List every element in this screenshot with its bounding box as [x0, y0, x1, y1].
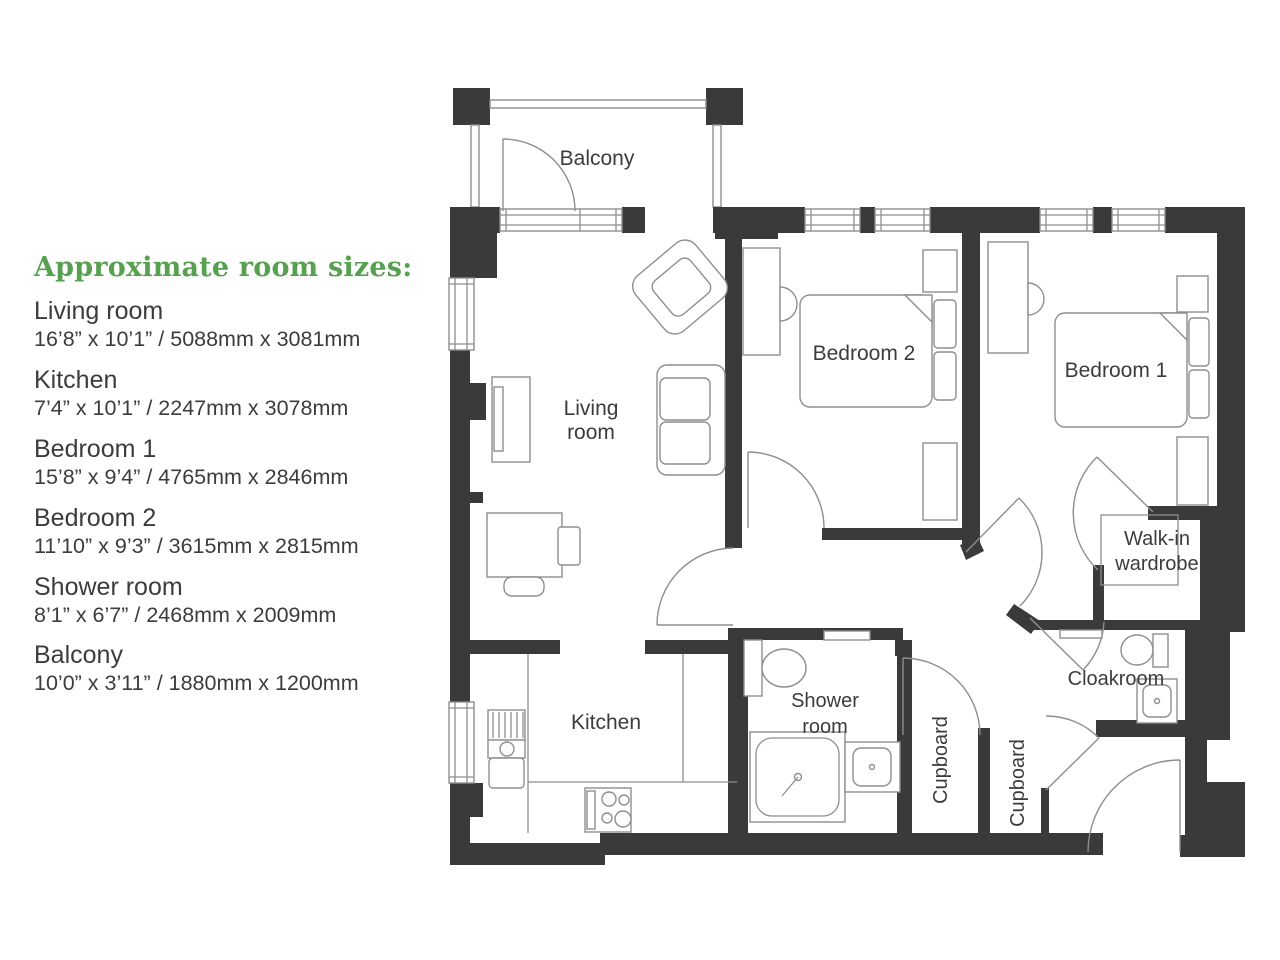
label-bedroom1: Bedroom 1	[1065, 359, 1168, 382]
cupboard2-door	[1046, 716, 1099, 790]
bedroom2-window-1	[805, 209, 860, 231]
tv-screen	[494, 387, 503, 451]
cloakroom-basin-drain	[1155, 699, 1160, 704]
hob-controls	[587, 791, 595, 829]
cloakroom-toilet-cistern	[1153, 634, 1168, 667]
shower-room-sliding-door	[824, 631, 870, 640]
bedroom1-window-1	[1040, 209, 1093, 231]
armchair	[627, 234, 733, 339]
bedroom1-window-2	[1112, 209, 1165, 231]
label-shower-line2: room	[802, 716, 848, 738]
hob-burner-3	[602, 813, 612, 823]
shower-toilet-cistern	[744, 640, 762, 696]
bedroom2-pillow-2	[934, 352, 956, 400]
kitchen-side-window	[449, 702, 474, 783]
desk-monitor	[558, 527, 580, 565]
label-bedroom2: Bedroom 2	[813, 342, 916, 365]
desk-chair	[504, 577, 544, 596]
bedroom2-drawers	[923, 443, 957, 520]
kitchen-faucet	[500, 742, 514, 756]
balcony-railing-top	[490, 100, 706, 108]
furniture-bedroom2	[743, 248, 957, 520]
bedroom1-pillow-1	[1189, 318, 1209, 366]
bedroom2-bedside-unit	[923, 250, 957, 292]
living-room-window	[500, 209, 622, 231]
bedroom2-pillow-1	[934, 300, 956, 348]
balcony-railing-left	[471, 125, 479, 207]
sofa-cushion-1	[660, 378, 710, 420]
bedroom2-window-2	[875, 209, 930, 231]
floorplan-page: Approximate room sizes: Living room 16’8…	[0, 0, 1280, 960]
bedroom1-desk	[988, 242, 1028, 353]
shower-basin-drain	[870, 765, 875, 770]
label-walk-in-line1: Walk-in	[1124, 528, 1190, 550]
bedroom2-chair	[780, 287, 797, 321]
label-kitchen: Kitchen	[571, 711, 641, 734]
bedroom1-chair	[1028, 283, 1044, 315]
hob-burner-4	[615, 811, 631, 827]
kitchen-counter-edge	[528, 654, 737, 833]
shower-toilet-bowl	[762, 649, 806, 687]
bedroom1-drawers	[1177, 437, 1208, 505]
label-cupboard1: Cupboard	[930, 716, 952, 804]
bedroom2-wardrobe	[743, 248, 780, 355]
label-cupboard2: Cupboard	[1007, 739, 1029, 827]
label-living-room-line2: room	[567, 421, 615, 444]
label-walk-in-line2: wardrobe	[1114, 553, 1198, 575]
bedroom1-pillow-2	[1189, 370, 1209, 418]
sofa-cushion-2	[660, 422, 710, 464]
furniture-kitchen	[488, 654, 737, 833]
bedroom2-door	[748, 452, 824, 528]
cloakroom-sliding-door	[1060, 630, 1102, 638]
label-cloakroom: Cloakroom	[1068, 668, 1165, 690]
hob-burner-1	[602, 792, 616, 806]
label-balcony: Balcony	[560, 147, 635, 170]
balcony-railing-right	[713, 125, 721, 207]
cloakroom-toilet-bowl	[1121, 635, 1153, 665]
bottom-wall	[450, 833, 1245, 865]
hob-burner-2	[619, 795, 629, 805]
kitchen-sink-basin	[489, 758, 524, 788]
living-room-door	[657, 548, 733, 625]
living-room-side-window	[449, 278, 474, 350]
floorplan-drawing: Balcony Living room Bedroom 2 Bedroom 1 …	[0, 0, 1280, 960]
bedroom1-bedside-unit	[1177, 276, 1208, 312]
label-shower-line1: Shower	[791, 690, 859, 712]
desk	[487, 513, 562, 577]
label-living-room-line1: Living	[564, 397, 619, 420]
